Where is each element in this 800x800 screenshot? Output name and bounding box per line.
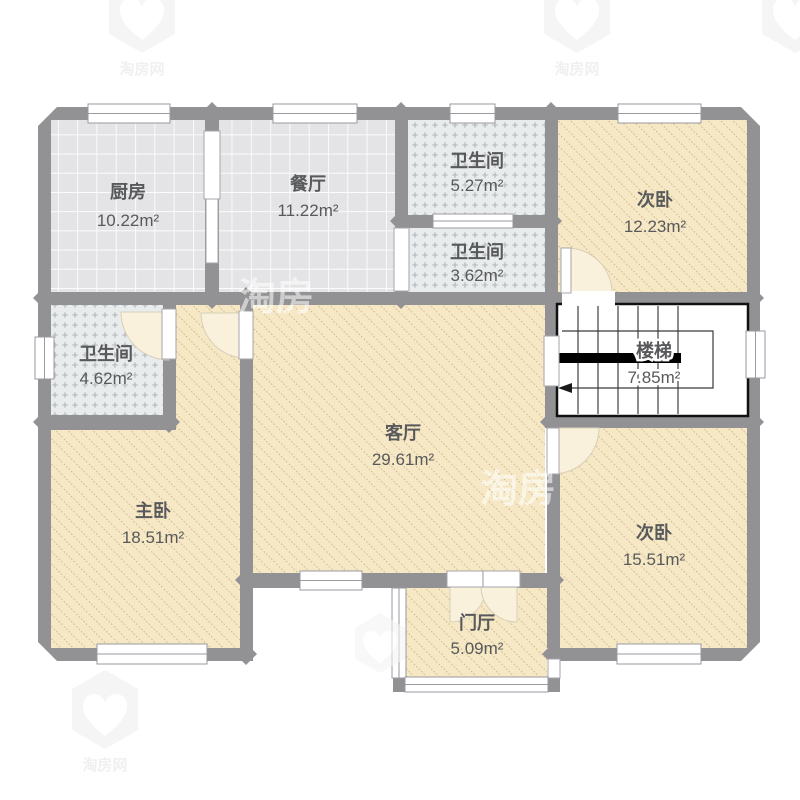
- room-area-stairs: 7.85m²: [628, 368, 681, 387]
- room-label-dining: 餐厅: [289, 173, 326, 194]
- room-area-dining: 11.22m²: [277, 201, 338, 220]
- door-kitchen-sliding-panel-2: [206, 199, 218, 263]
- watermark-logo-icon: 淘房网: [72, 670, 138, 774]
- wall-bath-left-bottom: [38, 415, 176, 430]
- room-label-bath-top: 卫生间: [450, 150, 504, 171]
- room-kitchen-floor: [51, 120, 205, 292]
- room-label-hall: 门厅: [459, 612, 495, 633]
- room-area-bath-top: 5.27m²: [451, 176, 504, 195]
- svg-text:淘房网: 淘房网: [81, 756, 127, 774]
- opening-stairwell: [544, 336, 559, 386]
- door-leaf-bedroom-se: [547, 428, 559, 474]
- svg-text:淘房网: 淘房网: [553, 60, 599, 78]
- room-area-bedroom-se: 15.51m²: [623, 550, 686, 569]
- room-area-bath-mid: 3.62m²: [451, 266, 504, 285]
- room-label-bedroom-ne: 次卧: [637, 189, 673, 210]
- floor-plan-page: 厨房 10.22m² 餐厅 11.22m² 卫生间 5.27m² 卫生间 3.6…: [0, 0, 800, 800]
- watermark-logo-icon: 淘房网: [544, 0, 610, 78]
- room-area-kitchen: 10.22m²: [97, 211, 160, 230]
- room-area-living: 29.61m²: [372, 450, 435, 469]
- room-label-bath-left: 卫生间: [79, 343, 133, 364]
- floor-plan: 厨房 10.22m² 餐厅 11.22m² 卫生间 5.27m² 卫生间 3.6…: [0, 0, 800, 800]
- room-label-bedroom-se: 次卧: [636, 522, 672, 543]
- watermark-text: 淘房: [238, 277, 314, 319]
- door-leaf-bath-left: [162, 309, 176, 359]
- watermark-text: 淘房: [480, 469, 556, 511]
- room-area-master: 18.51m²: [122, 528, 185, 547]
- svg-text:淘房网: 淘房网: [118, 60, 164, 78]
- wall-outer-left: [38, 107, 51, 661]
- door-leaf-bedroom-ne: [561, 248, 571, 293]
- room-area-bedroom-ne: 12.23m²: [624, 217, 687, 236]
- door-kitchen-sliding-panel-1: [204, 131, 220, 199]
- room-label-master: 主卧: [135, 500, 171, 521]
- watermark-logo-icon: 淘房网: [109, 0, 175, 78]
- opening-hall-bedroom: [548, 659, 560, 678]
- room-label-living: 客厅: [385, 422, 421, 443]
- watermark-logo-icon: [762, 0, 800, 53]
- room-label-kitchen: 厨房: [110, 181, 146, 202]
- room-area-bath-left: 4.62m²: [80, 369, 133, 388]
- room-area-hall: 5.09m²: [451, 639, 504, 658]
- room-label-bath-mid: 卫生间: [450, 241, 504, 262]
- room-label-stairs: 楼梯: [636, 340, 672, 361]
- door-bath-mid-sliding: [394, 228, 409, 291]
